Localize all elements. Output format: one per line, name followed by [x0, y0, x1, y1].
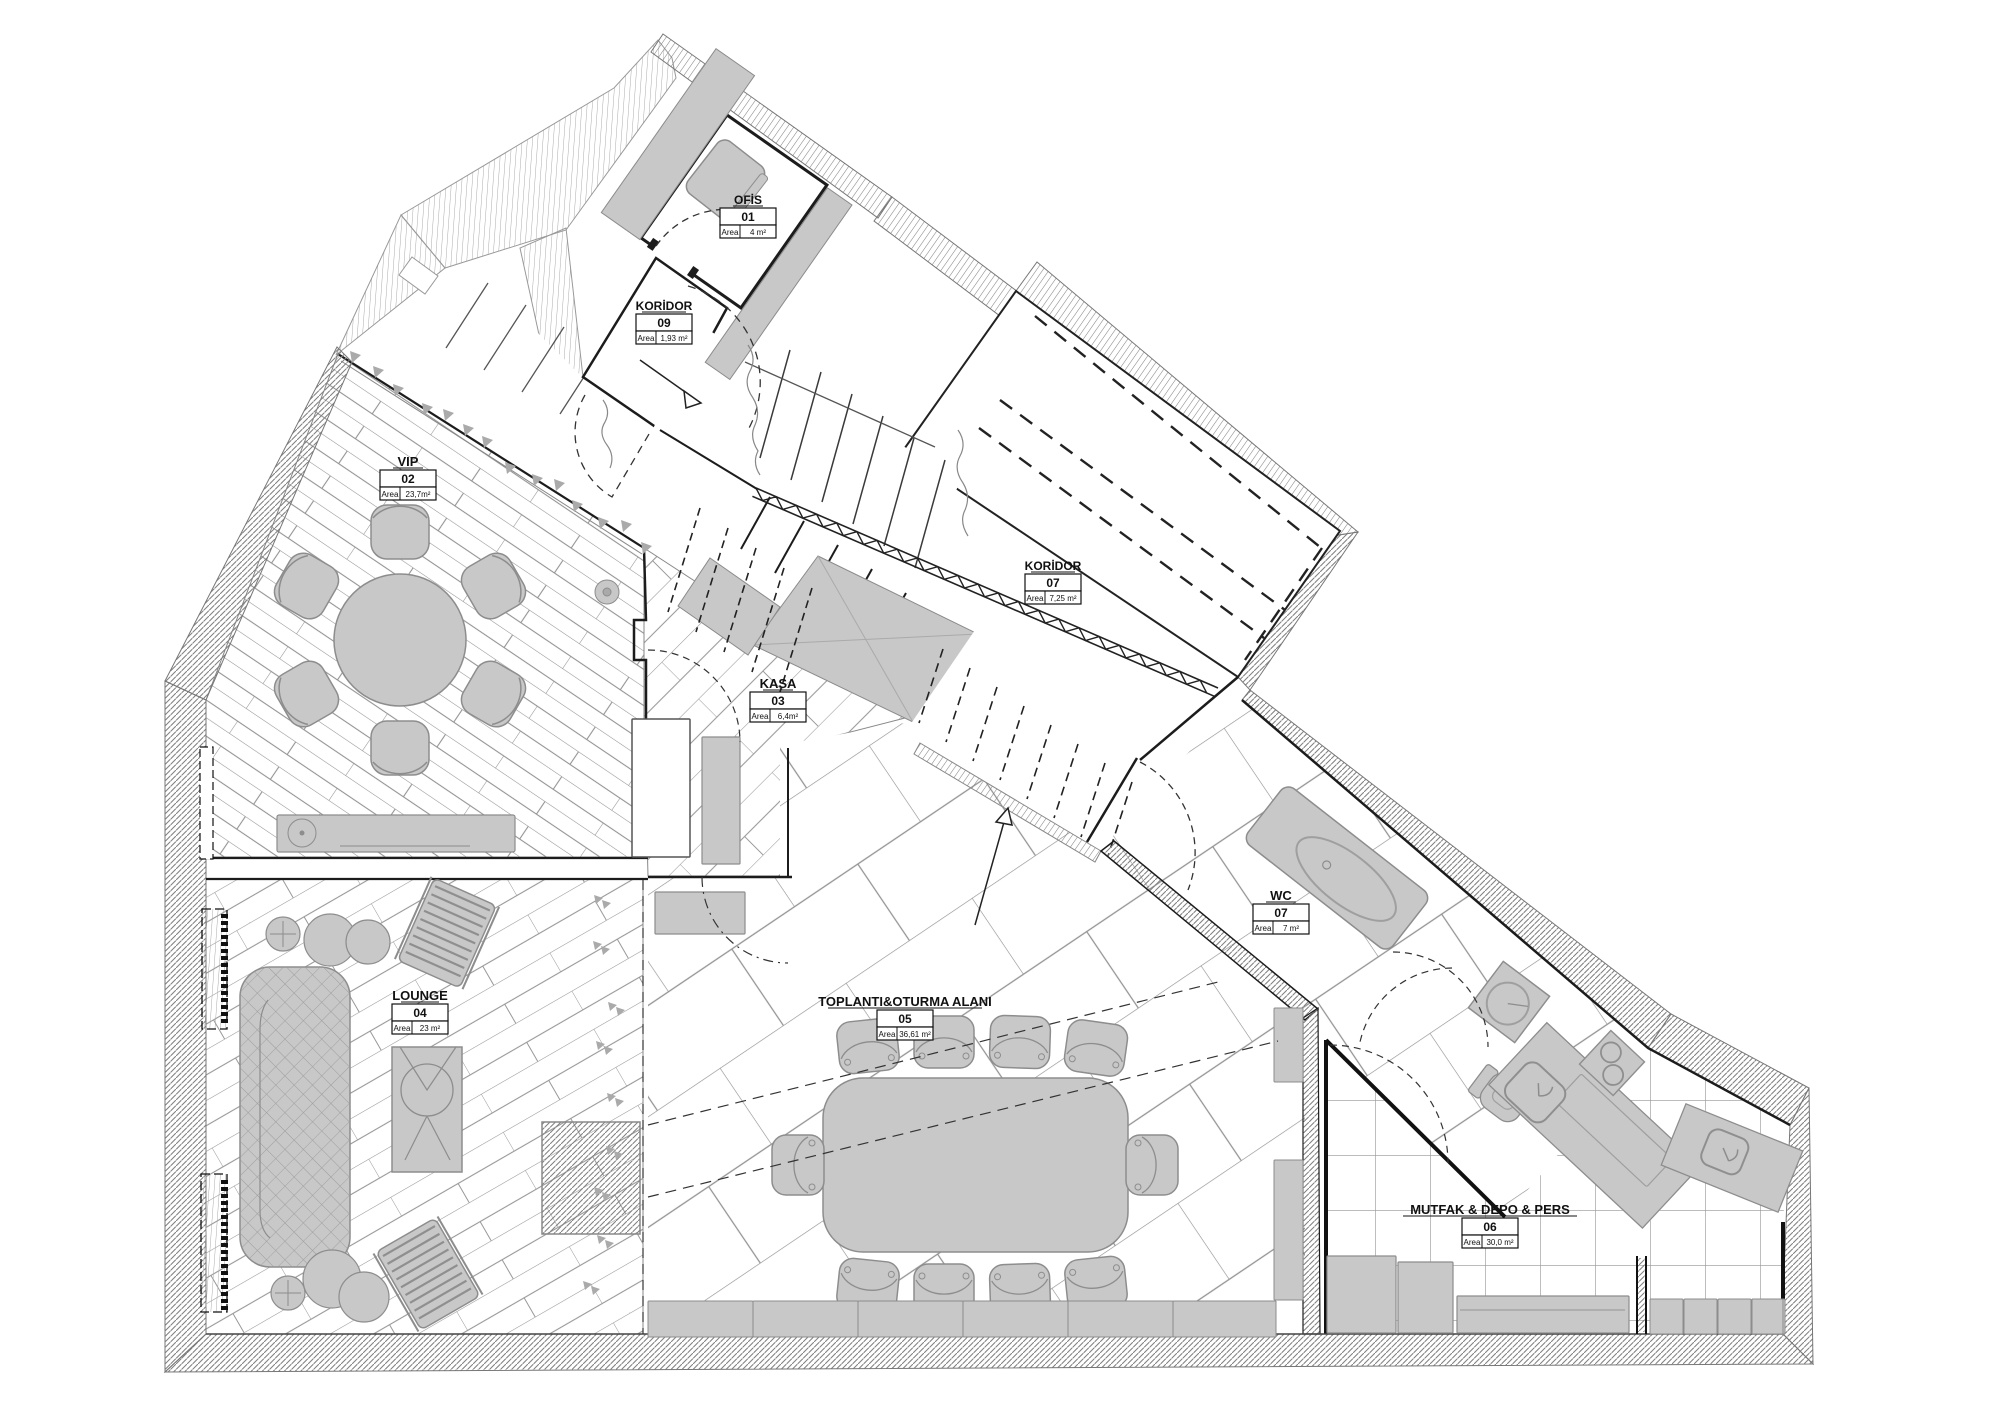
svg-text:TOPLANTI&OTURMA ALANI: TOPLANTI&OTURMA ALANI [818, 994, 992, 1009]
svg-text:WC: WC [1270, 888, 1292, 903]
svg-text:VIP: VIP [398, 454, 419, 469]
svg-text:05: 05 [898, 1012, 912, 1026]
svg-text:36,61 m²: 36,61 m² [899, 1030, 931, 1039]
svg-text:6,4m²: 6,4m² [778, 712, 799, 721]
svg-text:KORİDOR: KORİDOR [1025, 558, 1082, 573]
svg-text:23,7m²: 23,7m² [406, 490, 431, 499]
svg-text:7 m²: 7 m² [1283, 924, 1299, 933]
svg-text:02: 02 [401, 472, 415, 486]
svg-text:Area: Area [879, 1030, 896, 1039]
svg-text:07: 07 [1274, 906, 1288, 920]
svg-text:09: 09 [657, 316, 671, 330]
svg-text:Area: Area [638, 334, 655, 343]
svg-text:07: 07 [1046, 576, 1060, 590]
svg-text:4 m²: 4 m² [750, 228, 766, 237]
svg-text:Area: Area [394, 1024, 411, 1033]
svg-text:30,0 m²: 30,0 m² [1486, 1238, 1513, 1247]
svg-text:03: 03 [771, 694, 785, 708]
svg-text:23 m²: 23 m² [420, 1024, 441, 1033]
svg-text:MUTFAK & DEPO & PERS: MUTFAK & DEPO & PERS [1410, 1202, 1570, 1217]
svg-text:7,25 m²: 7,25 m² [1049, 594, 1076, 603]
svg-text:01: 01 [741, 210, 755, 224]
svg-text:OFİS: OFİS [734, 192, 762, 207]
svg-text:Area: Area [1464, 1238, 1481, 1247]
svg-text:KORİDOR: KORİDOR [636, 298, 693, 313]
svg-text:Area: Area [722, 228, 739, 237]
svg-text:06: 06 [1483, 1220, 1497, 1234]
svg-text:LOUNGE: LOUNGE [392, 988, 448, 1003]
svg-text:1,93 m²: 1,93 m² [660, 334, 687, 343]
svg-text:04: 04 [413, 1006, 427, 1020]
svg-text:Area: Area [382, 490, 399, 499]
svg-text:KASA: KASA [760, 676, 797, 691]
svg-text:Area: Area [1255, 924, 1272, 933]
svg-text:Area: Area [1027, 594, 1044, 603]
svg-text:Area: Area [752, 712, 769, 721]
